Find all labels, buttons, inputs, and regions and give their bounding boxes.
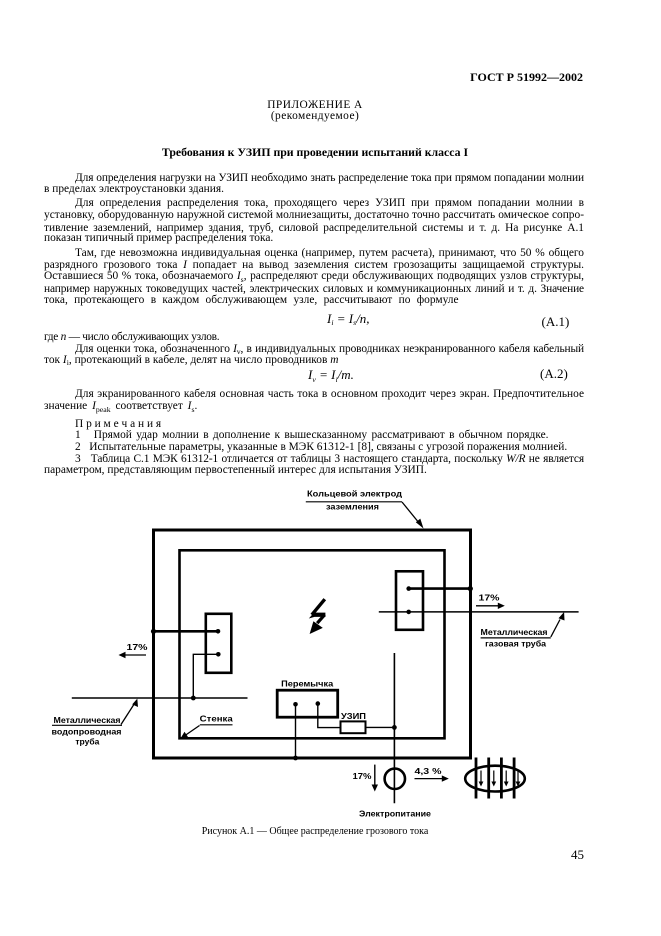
svg-text:газовая труба: газовая труба — [485, 639, 547, 648]
svg-text:Стенка: Стенка — [200, 715, 234, 724]
svg-text:Перемычка: Перемычка — [281, 680, 334, 689]
svg-text:водопроводная: водопроводная — [52, 728, 122, 737]
svg-text:Электропитание: Электропитание — [359, 809, 432, 818]
svg-text:Металлическая: Металлическая — [54, 716, 121, 725]
svg-text:17%: 17% — [479, 593, 500, 602]
svg-text:Металлическая: Металлическая — [481, 628, 548, 637]
svg-text:Кольцевой электрод: Кольцевой электрод — [307, 490, 402, 499]
svg-text:УЗИП: УЗИП — [341, 712, 366, 721]
svg-text:17%: 17% — [127, 643, 148, 652]
svg-text:4,3 %: 4,3 % — [415, 767, 442, 776]
svg-text:заземления: заземления — [326, 502, 379, 511]
svg-text:труба: труба — [75, 738, 100, 747]
svg-text:17%: 17% — [353, 772, 372, 781]
